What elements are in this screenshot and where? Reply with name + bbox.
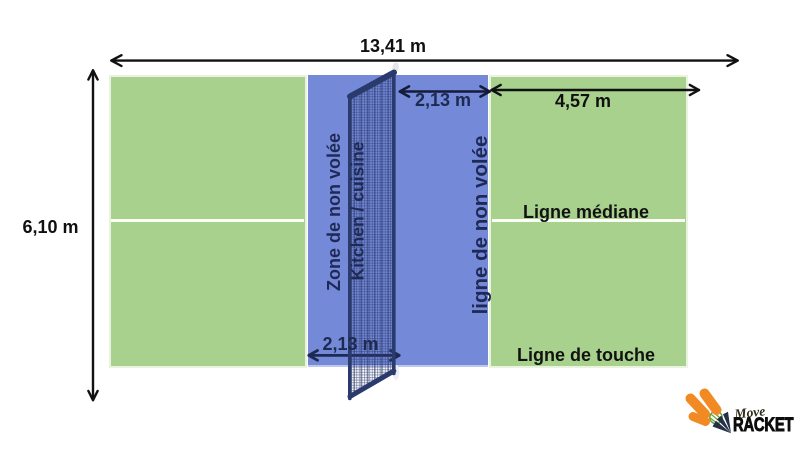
- svg-text:RACKET: RACKET: [733, 414, 794, 435]
